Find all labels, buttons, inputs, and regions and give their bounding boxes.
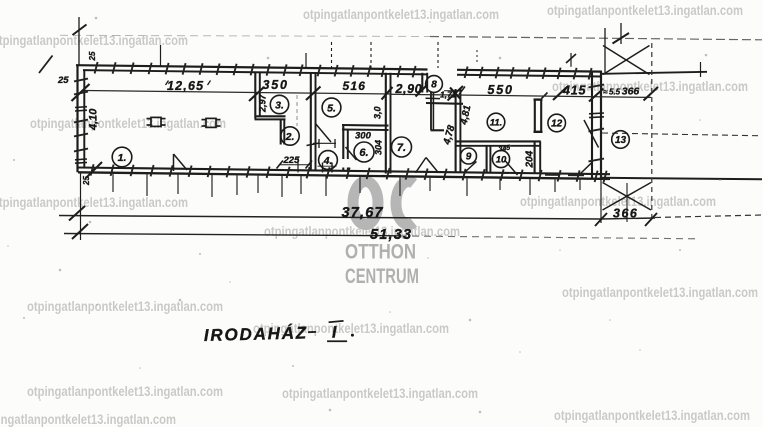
svg-text:415: 415 xyxy=(562,84,587,98)
svg-text:5.: 5. xyxy=(327,102,336,114)
svg-text:otpingatlanpontkelet13.ingatla: otpingatlanpontkelet13.ingatlan.com xyxy=(554,408,750,423)
svg-text:otpingatlanpontkelet13.ingatla: otpingatlanpontkelet13.ingatlan.com xyxy=(27,384,223,399)
svg-text:516: 516 xyxy=(343,79,367,93)
svg-text:otpingatlanpontkelet13.ingatla: otpingatlanpontkelet13.ingatlan.com xyxy=(303,7,499,22)
svg-text:8: 8 xyxy=(431,80,437,91)
svg-text:2.: 2. xyxy=(285,131,295,143)
svg-text:304: 304 xyxy=(374,140,384,155)
svg-text:otpingatlanpontkelet13.ingatla: otpingatlanpontkelet13.ingatlan.com xyxy=(547,3,743,18)
svg-text:11.: 11. xyxy=(490,117,503,128)
svg-text:25: 25 xyxy=(88,51,97,61)
svg-text:12,65: 12,65 xyxy=(167,79,204,93)
svg-text:≈ 5.5 366: ≈ 5.5 366 xyxy=(603,86,639,98)
svg-text:otpingatlanpontkelet13.ingatla: otpingatlanpontkelet13.ingatlan.com xyxy=(562,285,758,300)
svg-text:37,67: 37,67 xyxy=(342,205,384,221)
svg-text:550: 550 xyxy=(488,83,514,97)
svg-text:otpingatlanpontkelet13.ingatla: otpingatlanpontkelet13.ingatlan.com xyxy=(27,299,223,314)
svg-text:6.: 6. xyxy=(359,147,368,159)
svg-text:3.: 3. xyxy=(275,99,284,111)
svg-text:204: 204 xyxy=(525,150,536,168)
svg-text:7.: 7. xyxy=(397,142,406,154)
svg-text:25: 25 xyxy=(57,75,69,86)
svg-text:4,10: 4,10 xyxy=(88,108,100,131)
svg-text:3,0: 3,0 xyxy=(373,106,383,119)
svg-text:1.: 1. xyxy=(118,152,127,164)
svg-text:4.: 4. xyxy=(323,155,333,167)
svg-text:–: – xyxy=(308,323,317,340)
svg-text:300: 300 xyxy=(355,131,372,142)
svg-text:51,33: 51,33 xyxy=(370,227,412,243)
svg-text:otpingatlanpontkelet13.ingatla: otpingatlanpontkelet13.ingatlan.com xyxy=(30,116,226,131)
svg-text:1,71: 1,71 xyxy=(440,90,457,100)
svg-text:12: 12 xyxy=(551,119,563,130)
svg-text:CENTRUM: CENTRUM xyxy=(345,265,419,288)
svg-text:13: 13 xyxy=(615,135,627,146)
svg-text:IRODAHÁZ: IRODAHÁZ xyxy=(204,323,309,345)
svg-text:otpingatlanpontkelet13.ingatla: otpingatlanpontkelet13.ingatlan.com xyxy=(0,412,176,427)
svg-text:25: 25 xyxy=(82,176,91,186)
svg-text:otpingatlanpontkelet13.ingatla: otpingatlanpontkelet13.ingatlan.com xyxy=(0,195,188,210)
svg-text:350: 350 xyxy=(263,78,289,92)
svg-text:I: I xyxy=(332,324,337,342)
svg-text:otpingatlanpontkelet13.ingatla: otpingatlanpontkelet13.ingatlan.com xyxy=(282,386,478,401)
svg-text:2,97: 2,97 xyxy=(258,93,268,113)
svg-text:366: 366 xyxy=(613,207,638,221)
svg-text:2,90: 2,90 xyxy=(395,82,423,96)
svg-text:9: 9 xyxy=(466,152,472,163)
svg-text:225: 225 xyxy=(283,155,301,166)
svg-text:10: 10 xyxy=(496,154,507,165)
svg-text:OTTHON: OTTHON xyxy=(345,241,416,264)
